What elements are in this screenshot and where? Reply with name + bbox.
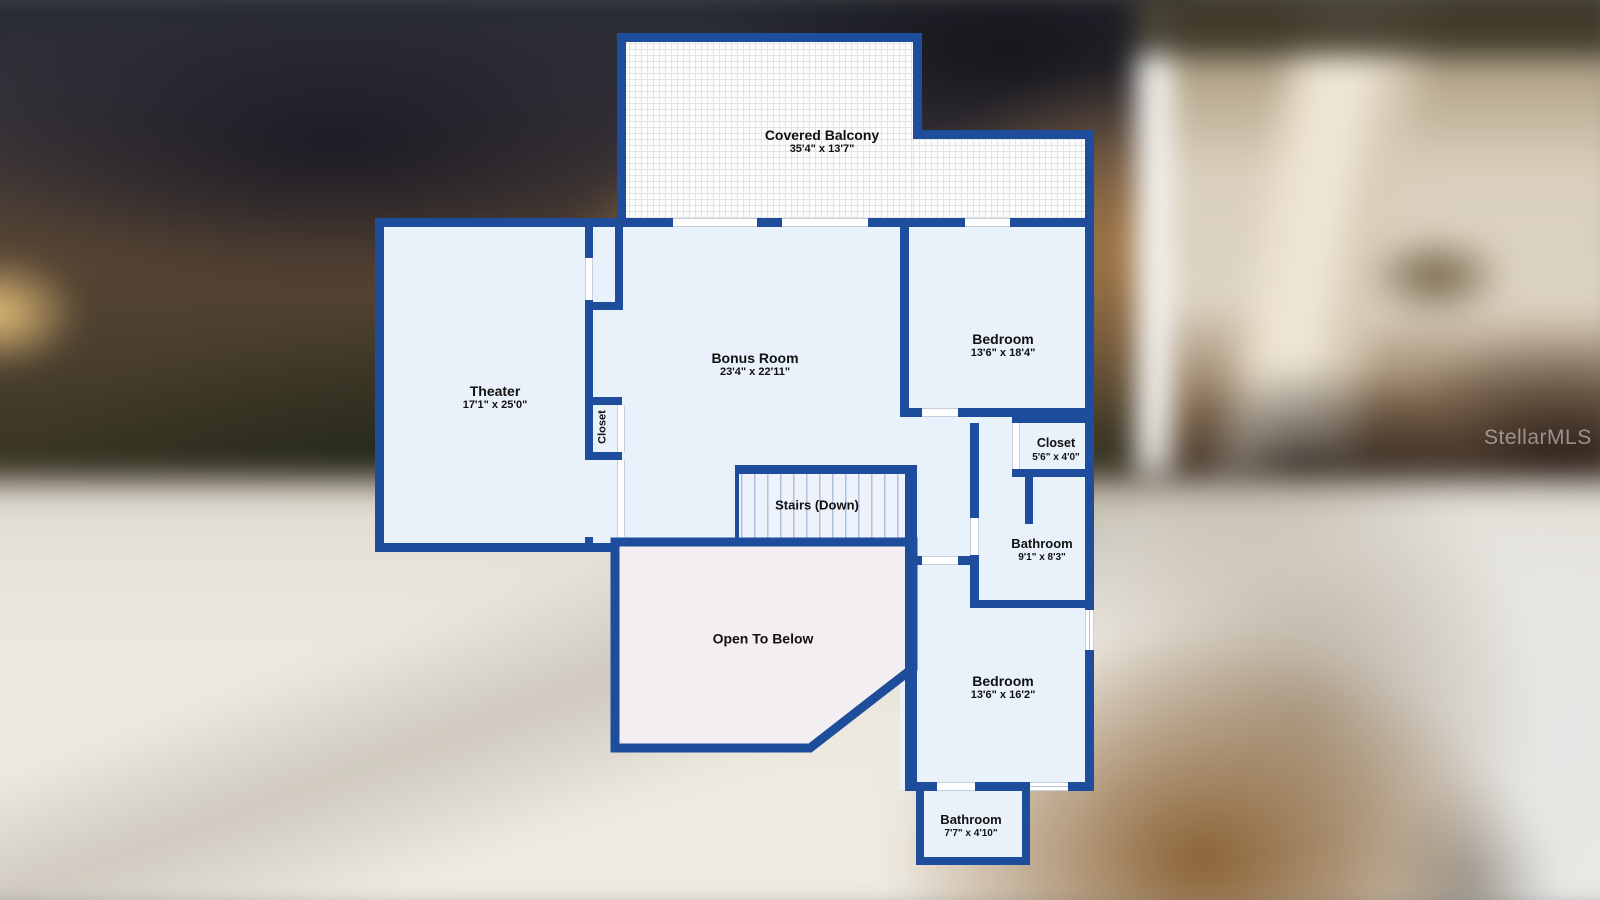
door-opening xyxy=(922,408,958,417)
room-label-theater: Theater 17'1" x 25'0" xyxy=(463,384,528,412)
wall xyxy=(905,465,917,790)
door-opening xyxy=(937,782,975,791)
door-opening xyxy=(922,556,958,565)
wall xyxy=(1012,415,1094,423)
wall xyxy=(916,790,924,865)
wall xyxy=(585,218,593,258)
door-opening xyxy=(1012,423,1020,469)
wall xyxy=(585,302,623,310)
wall xyxy=(585,452,622,460)
wall xyxy=(868,218,965,227)
door-opening xyxy=(673,218,757,227)
wall xyxy=(905,556,922,565)
wall xyxy=(900,408,922,417)
floor-plan: Covered Balcony 35'4" x 13'7" Theater 17… xyxy=(370,28,1100,873)
wall xyxy=(1085,218,1094,790)
wall xyxy=(913,33,922,139)
wall xyxy=(735,474,739,538)
room-label-bathroom-lower: Bathroom 7'7" x 4'10" xyxy=(940,812,1001,840)
room-label-closet-upper: Closet 5'6" x 4'0" xyxy=(1032,436,1080,464)
door-opening xyxy=(617,460,625,537)
room-covered-balcony-ext xyxy=(913,130,1085,218)
door-opening xyxy=(970,518,979,555)
wall xyxy=(916,857,1030,865)
wall xyxy=(970,600,1094,608)
door-opening xyxy=(585,258,593,300)
wall xyxy=(1010,218,1094,227)
wall xyxy=(1085,130,1094,218)
room-label-bonus-room: Bonus Room 23'4" x 22'11" xyxy=(711,351,798,379)
wall xyxy=(1022,790,1030,865)
door-opening xyxy=(617,405,625,452)
door-opening xyxy=(782,218,868,227)
room-label-bedroom-lower: Bedroom 13'6" x 16'2" xyxy=(971,674,1036,702)
wall xyxy=(1025,477,1033,524)
wall xyxy=(735,465,917,474)
room-label-open-to-below: Open To Below xyxy=(713,632,814,647)
wall xyxy=(375,218,384,552)
room-label-closet-theater: Closet xyxy=(597,410,610,444)
room-label-stairs: Stairs (Down) xyxy=(775,498,859,513)
window-opening xyxy=(1030,782,1068,791)
window-opening xyxy=(1085,610,1094,650)
wall xyxy=(585,537,593,552)
wall xyxy=(757,218,782,227)
stellar-mls-watermark: StellarMLS xyxy=(1484,426,1592,450)
room-label-bathroom-upper: Bathroom 9'1" x 8'3" xyxy=(1011,536,1072,564)
wall xyxy=(913,130,1094,139)
wall xyxy=(585,300,593,397)
wall xyxy=(617,33,626,218)
wall xyxy=(1068,782,1094,791)
wall xyxy=(375,543,619,552)
wall xyxy=(615,227,623,310)
wall xyxy=(617,33,922,42)
wall xyxy=(1012,469,1094,477)
room-label-bedroom-upper: Bedroom 13'6" x 18'4" xyxy=(971,332,1036,360)
room-label-covered-balcony: Covered Balcony 35'4" x 13'7" xyxy=(765,128,879,156)
room-right-wing xyxy=(900,222,1094,790)
wall xyxy=(900,218,909,417)
room-covered-balcony xyxy=(617,33,922,218)
wall xyxy=(375,218,673,227)
door-opening xyxy=(965,218,1010,227)
wall xyxy=(970,423,979,518)
wall xyxy=(958,556,973,565)
wall xyxy=(585,397,593,460)
